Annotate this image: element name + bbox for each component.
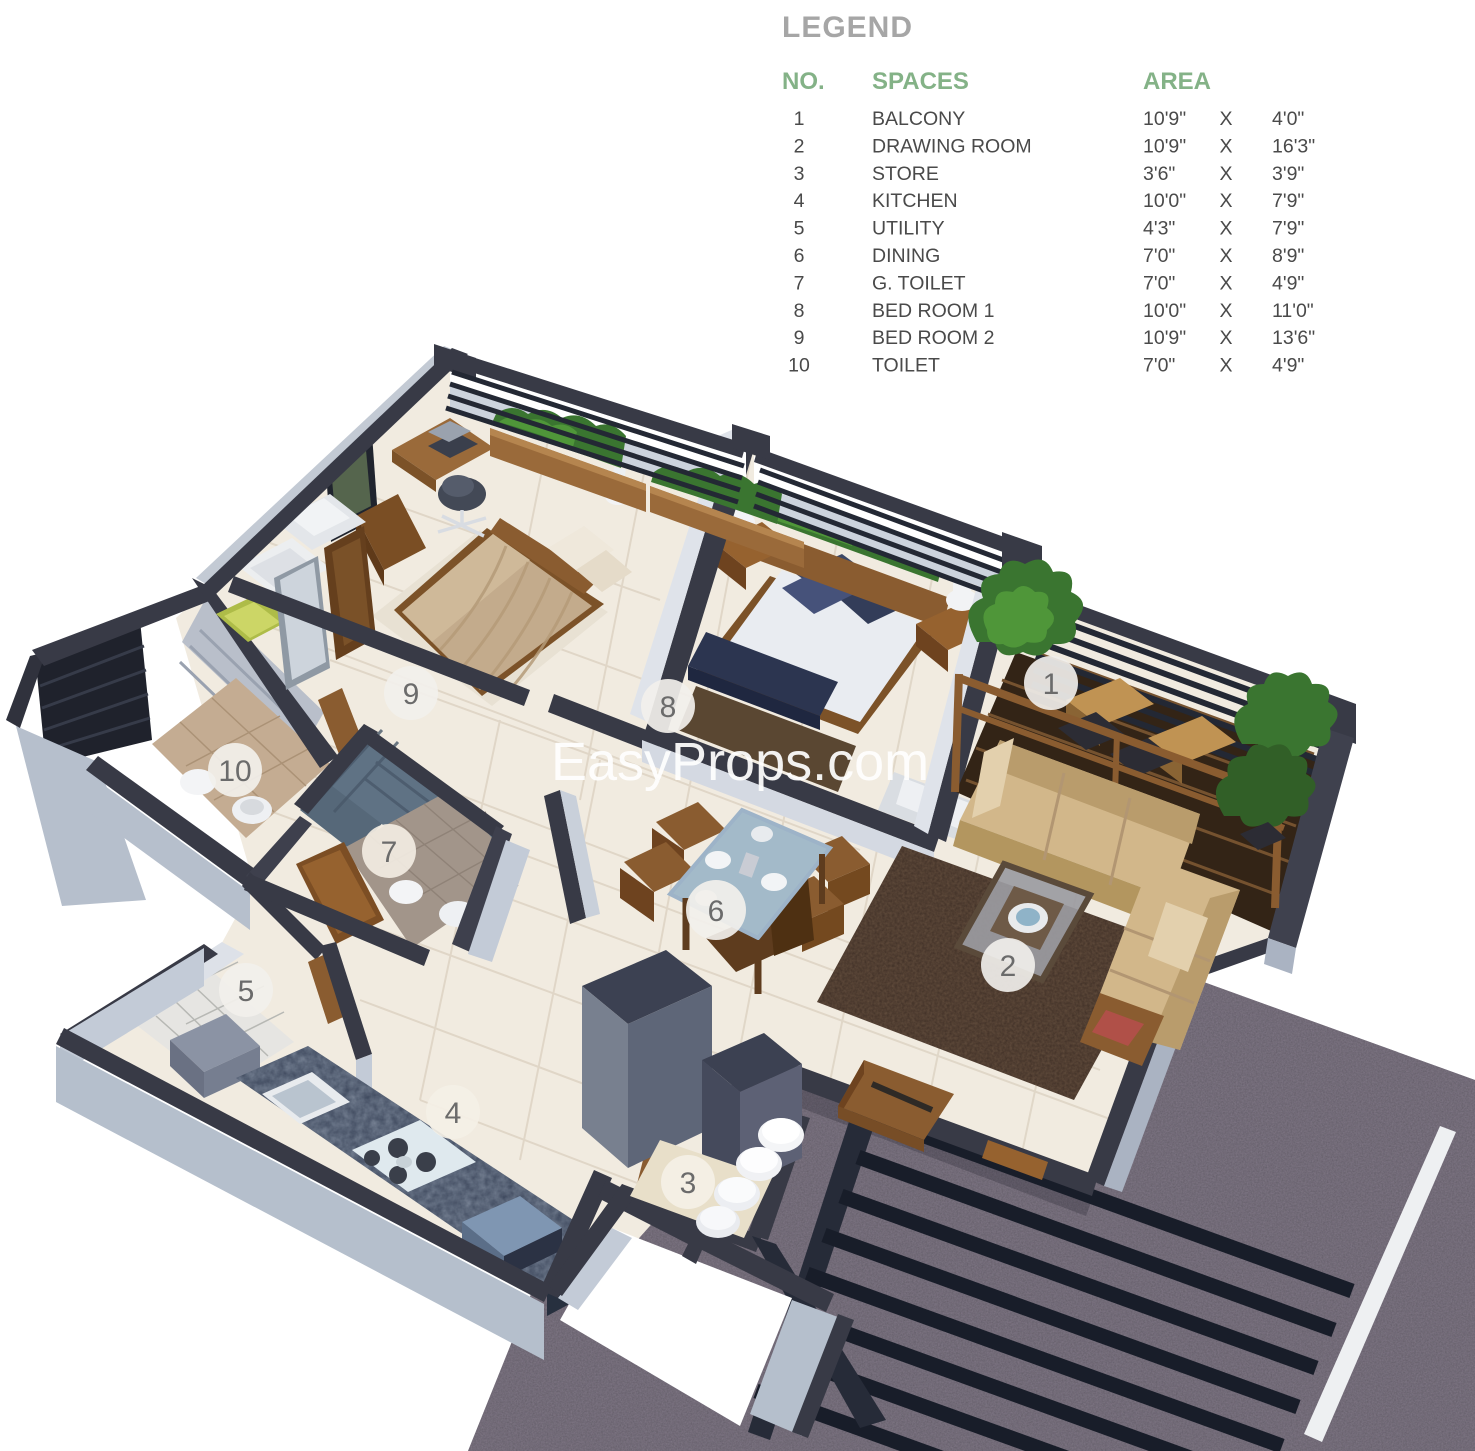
svg-text:UTILITY: UTILITY — [872, 218, 945, 240]
svg-text:1: 1 — [794, 108, 805, 130]
svg-text:NO.: NO. — [782, 68, 825, 95]
svg-text:4'9": 4'9" — [1272, 355, 1304, 377]
svg-text:7'9": 7'9" — [1272, 190, 1304, 212]
svg-text:9: 9 — [403, 678, 420, 711]
svg-text:4: 4 — [445, 1097, 462, 1130]
svg-text:10'9": 10'9" — [1143, 327, 1186, 349]
svg-text:4: 4 — [794, 190, 805, 212]
svg-text:BED ROOM 1: BED ROOM 1 — [872, 300, 994, 322]
svg-text:AREA: AREA — [1143, 68, 1211, 95]
svg-text:16'3": 16'3" — [1272, 135, 1315, 157]
svg-text:8: 8 — [794, 300, 805, 322]
svg-text:2: 2 — [794, 135, 805, 157]
svg-text:10'9": 10'9" — [1143, 108, 1186, 130]
svg-text:4'9": 4'9" — [1272, 272, 1304, 294]
svg-text:7'0": 7'0" — [1143, 272, 1175, 294]
svg-text:3: 3 — [680, 1167, 697, 1200]
svg-text:8'9": 8'9" — [1272, 245, 1304, 267]
svg-text:5: 5 — [238, 975, 255, 1008]
svg-text:BALCONY: BALCONY — [872, 108, 965, 130]
svg-text:KITCHEN: KITCHEN — [872, 190, 958, 212]
svg-text:3'9": 3'9" — [1272, 163, 1304, 185]
svg-text:X: X — [1219, 163, 1232, 185]
svg-text:BED ROOM 2: BED ROOM 2 — [872, 327, 994, 349]
svg-text:1: 1 — [1043, 668, 1060, 701]
svg-text:X: X — [1219, 300, 1232, 322]
svg-text:EasyProps.com: EasyProps.com — [551, 732, 929, 792]
svg-text:5: 5 — [794, 218, 805, 240]
svg-text:X: X — [1219, 355, 1232, 377]
svg-text:7: 7 — [794, 272, 805, 294]
svg-text:11'0": 11'0" — [1272, 300, 1314, 322]
svg-text:X: X — [1219, 135, 1232, 157]
svg-text:X: X — [1219, 218, 1232, 240]
svg-text:X: X — [1219, 190, 1232, 212]
svg-text:9: 9 — [794, 327, 805, 349]
svg-text:X: X — [1219, 272, 1232, 294]
svg-text:10: 10 — [218, 755, 251, 788]
svg-text:10'0": 10'0" — [1143, 190, 1186, 212]
svg-text:DINING: DINING — [872, 245, 940, 267]
svg-text:7'9": 7'9" — [1272, 218, 1304, 240]
svg-text:13'6": 13'6" — [1272, 327, 1315, 349]
svg-text:LEGEND: LEGEND — [782, 11, 913, 44]
svg-text:DRAWING ROOM: DRAWING ROOM — [872, 135, 1032, 157]
svg-text:4'0": 4'0" — [1272, 108, 1304, 130]
svg-text:SPACES: SPACES — [872, 68, 969, 95]
svg-text:7'0": 7'0" — [1143, 245, 1175, 267]
svg-text:10'9": 10'9" — [1143, 135, 1186, 157]
svg-text:X: X — [1219, 245, 1232, 267]
svg-text:STORE: STORE — [872, 163, 939, 185]
svg-text:6: 6 — [794, 245, 805, 267]
svg-text:7'0": 7'0" — [1143, 355, 1175, 377]
svg-text:G. TOILET: G. TOILET — [872, 272, 966, 294]
svg-text:10'0": 10'0" — [1143, 300, 1186, 322]
svg-text:3'6": 3'6" — [1143, 163, 1175, 185]
svg-text:X: X — [1219, 327, 1232, 349]
svg-text:8: 8 — [660, 691, 677, 724]
svg-text:4'3": 4'3" — [1143, 218, 1175, 240]
svg-text:6: 6 — [708, 895, 725, 928]
svg-text:7: 7 — [381, 836, 398, 869]
svg-text:10: 10 — [788, 355, 810, 377]
svg-text:3: 3 — [794, 163, 805, 185]
svg-text:2: 2 — [1000, 950, 1017, 983]
svg-text:X: X — [1219, 108, 1232, 130]
svg-text:TOILET: TOILET — [872, 355, 940, 377]
